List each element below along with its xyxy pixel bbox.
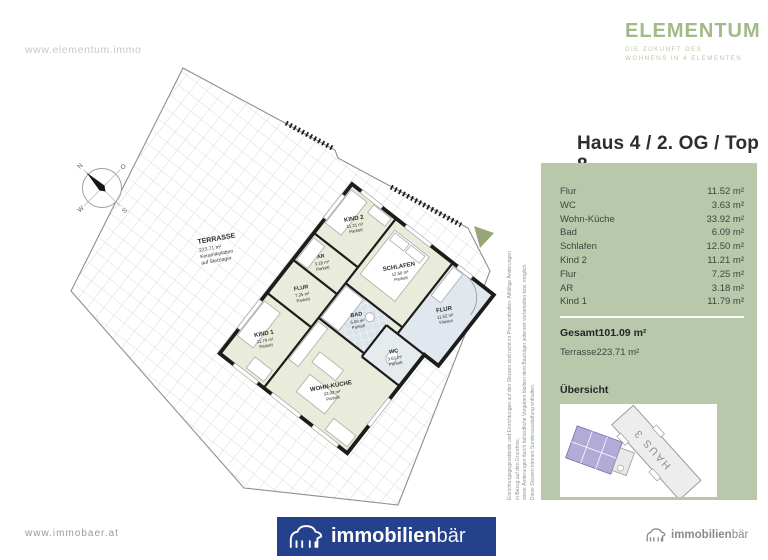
area-summary-panel: Flur11.52 m² WC3.63 m² Wohn-Küche33.92 m… (541, 163, 757, 500)
elementum-logo: ELEMENTUM DIE ZUKUNFT DES WOHNENS IN 4 E… (625, 20, 755, 63)
list-item: Kind 211.21 m² (560, 254, 744, 268)
svg-text:N: N (76, 162, 84, 170)
list-item: Bad6.09 m² (560, 226, 744, 240)
overview-map: HAUS 3 (560, 404, 717, 497)
overview-heading: Übersicht (560, 384, 744, 396)
list-item: Flur7.25 m² (560, 268, 744, 282)
legal-disclaimer: Einrichtungsgegenstände und Einrichtunge… (507, 248, 537, 500)
list-item: Flur11.52 m² (560, 185, 744, 199)
list-item: AR3.18 m² (560, 282, 744, 296)
list-item: WC3.63 m² (560, 199, 744, 213)
elementum-url: www.elementum.immo (25, 44, 141, 56)
flyer-page: www.elementum.immo ELEMENTUM DIE ZUKUNFT… (0, 0, 768, 560)
list-item: Wohn-Küche33.92 m² (560, 213, 744, 227)
room-area-list: Flur11.52 m² WC3.63 m² Wohn-Küche33.92 m… (560, 185, 744, 309)
divider (560, 316, 744, 318)
svg-text:O: O (119, 163, 128, 172)
immobilienbaer-logo: immobilienbär (277, 517, 496, 556)
immobaer-url: www.immobaer.at (25, 528, 119, 539)
terrace-row: Terrasse223.71 m² (560, 346, 744, 360)
immobilienbaer-logo-small: immobilienbär (645, 527, 748, 543)
floorplan-drawing: N O S W TERRASSE 223.71 m² Keramikplatte… (36, 56, 518, 518)
bear-icon (287, 523, 325, 550)
list-item: Kind 111.79 m² (560, 295, 744, 309)
list-item: Schlafen12.50 m² (560, 240, 744, 254)
svg-text:W: W (76, 204, 86, 214)
logo-small-text: immobilienbär (671, 529, 748, 541)
brand-tagline: DIE ZUKUNFT DES WOHNENS IN 4 ELEMENTEN (625, 45, 755, 63)
brand-name: ELEMENTUM (625, 20, 755, 43)
logo-text: immobilienbär (331, 525, 465, 548)
total-row: Gesamt101.09 m² (560, 326, 744, 341)
bear-icon-small (645, 527, 667, 543)
